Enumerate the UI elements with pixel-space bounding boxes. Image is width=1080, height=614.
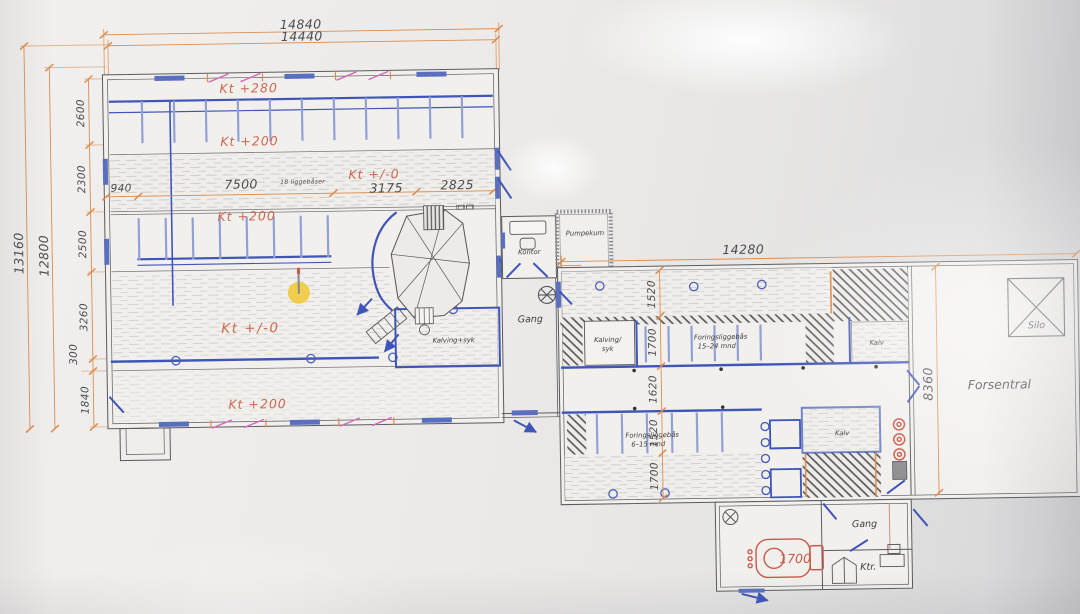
kalving-syk-right-room: Kalving/ syk	[584, 321, 635, 366]
room-label-kalv-lower: Kalv	[835, 429, 850, 437]
photo-of-floor-plan: 14840 14440 13160 12800	[0, 0, 1080, 614]
dimension-top: 14840 14440	[100, 14, 504, 77]
right-barn: Kalving/ syk Foringsliggebås 15–24 mnd K…	[555, 237, 1080, 505]
room-label-gang-mid: Gang	[518, 314, 543, 325]
dim-3260: 3260	[78, 303, 90, 332]
dim-1840: 1840	[79, 386, 91, 415]
corridor-door-window	[512, 410, 538, 415]
dim-2300: 2300	[76, 165, 88, 194]
dim-2825: 2825	[440, 177, 474, 193]
dim-row-1620: 1620	[647, 375, 659, 404]
room-label-ktr: Ktr.	[860, 562, 876, 573]
dim-13160: 13160	[11, 232, 27, 274]
dim-row-1520a: 1520	[646, 280, 658, 309]
dimension-left: 13160 12800 2600 2300 2500 3260 300 1840	[8, 41, 114, 433]
dim-14440: 14440	[281, 28, 323, 44]
room-label-gang-annex: Gang	[852, 519, 877, 530]
room-label-kontor: Kontor	[518, 248, 542, 256]
room-label-forings-15-24-1: Foringsliggebås	[694, 332, 748, 342]
drain-symbol	[538, 286, 555, 303]
dim-940: 940	[110, 182, 131, 194]
dim-300: 300	[68, 344, 80, 365]
level-kt200-mid: Kt +200	[217, 208, 276, 224]
annex: 1700 Gang Ktr.	[715, 499, 929, 601]
plan: 14840 14440 13160 12800	[8, 5, 1080, 613]
dim-8360: 8360	[920, 367, 936, 401]
dim-7500: 7500	[224, 176, 258, 192]
floor-plan-drawing: 14840 14440 13160 12800	[0, 0, 1080, 614]
bottom-left-pit	[120, 428, 170, 461]
level-kt200-top: Kt +200	[220, 133, 279, 149]
pumpekum-room: Pumpekum	[557, 211, 612, 275]
kalv-upper-room: Kalv	[851, 321, 909, 363]
desk-drawing	[510, 221, 546, 235]
dim-row-1700a: 1700	[646, 328, 658, 357]
room-label-forings-15-24-2: 15–24 mnd	[698, 342, 737, 351]
tank-capacity-label: 1700	[779, 551, 811, 566]
room-label-pumpekum: Pumpekum	[566, 229, 605, 238]
room-label-kalving-syk-right-2: syk	[602, 345, 615, 353]
room-label-kalv-upper: Kalv	[870, 339, 885, 347]
dim-3175: 3175	[369, 180, 403, 196]
dim-row-1700b: 1700	[649, 462, 661, 491]
level-kt200-bottom: Kt +200	[228, 396, 287, 412]
dim-row-1520b: 1520	[648, 419, 660, 448]
dim-14280: 14280	[722, 241, 764, 257]
left-barn: Kalving+syk Kt +280 Kt +200 Kt +200 Kt +…	[100, 68, 515, 460]
cabinet-drawing	[893, 461, 907, 479]
level-kt0-main: Kt +/-0	[221, 320, 280, 337]
concrete-block	[833, 268, 909, 321]
room-label-kalving-syk: Kalving+syk	[433, 336, 476, 345]
kalv-lower-room: Kalv	[802, 407, 881, 453]
dim-2600: 2600	[75, 99, 87, 128]
room-label-kalving-syk-right-1: Kalving/	[594, 336, 622, 344]
room-label-silo: Silo	[1028, 320, 1045, 331]
kontor-room: Kontor	[501, 216, 557, 279]
dim-12800: 12800	[36, 235, 52, 277]
dim-2500: 2500	[77, 230, 89, 259]
room-label-forsentral: Forsentral	[968, 376, 1032, 392]
level-kt280: Kt +280	[219, 80, 278, 96]
